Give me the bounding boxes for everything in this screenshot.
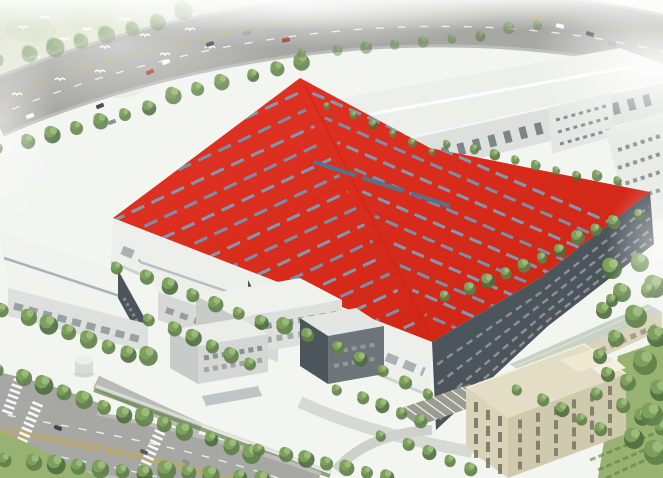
tree-highlight bbox=[326, 103, 329, 106]
tree-highlight bbox=[257, 444, 262, 449]
tree-highlight bbox=[652, 441, 663, 452]
tree-highlight bbox=[426, 389, 431, 394]
tree-highlight bbox=[451, 35, 455, 39]
tree-highlight bbox=[443, 291, 448, 296]
aerial-rendering bbox=[0, 0, 663, 478]
tree-highlight bbox=[76, 460, 83, 467]
tree-highlight bbox=[359, 352, 365, 358]
tree-highlight bbox=[385, 470, 391, 476]
tree-highlight bbox=[411, 138, 415, 142]
tree-highlight bbox=[392, 130, 395, 133]
tree-highlight bbox=[99, 114, 106, 121]
tree-highlight bbox=[479, 31, 484, 36]
tree-highlight bbox=[515, 385, 520, 390]
tree-highlight bbox=[142, 466, 149, 473]
tree-highlight bbox=[407, 438, 412, 443]
tree-highlight bbox=[115, 262, 120, 267]
tree-highlight bbox=[147, 314, 152, 319]
tree-highlight bbox=[22, 370, 29, 377]
tree-highlight bbox=[229, 348, 236, 355]
tree-highlight bbox=[468, 283, 473, 288]
tree-highlight bbox=[107, 340, 113, 346]
tree-highlight bbox=[0, 303, 6, 309]
tree-highlight bbox=[210, 340, 216, 346]
tree-highlight bbox=[534, 160, 538, 164]
tree-highlight bbox=[599, 423, 605, 429]
tree-highlight bbox=[325, 457, 331, 463]
tree-highlight bbox=[446, 140, 449, 143]
tree-highlight bbox=[301, 49, 305, 53]
tree-highlight bbox=[102, 401, 108, 407]
tree-highlight bbox=[580, 414, 585, 419]
tree-highlight bbox=[173, 322, 179, 328]
tree-highlight bbox=[191, 289, 197, 295]
tree-highlight bbox=[182, 423, 190, 431]
tree-highlight bbox=[555, 167, 558, 170]
tree-highlight bbox=[26, 310, 33, 317]
scene-canvas bbox=[0, 0, 663, 478]
tree-highlight bbox=[260, 316, 266, 322]
tree-highlight bbox=[145, 270, 151, 276]
tree-highlight bbox=[598, 350, 604, 356]
tree-highlight bbox=[594, 224, 599, 229]
tree-highlight bbox=[504, 268, 509, 273]
tree-highlight bbox=[400, 408, 405, 413]
tree-highlight bbox=[62, 385, 69, 392]
tree-highlight bbox=[75, 122, 81, 128]
tree-highlight bbox=[493, 149, 498, 154]
tree-highlight bbox=[541, 394, 546, 399]
tree-highlight bbox=[610, 295, 615, 300]
tree-highlight bbox=[238, 470, 244, 476]
tree-highlight bbox=[191, 330, 198, 337]
tree-highlight bbox=[46, 316, 54, 324]
tree-highlight bbox=[67, 325, 74, 332]
tree-highlight bbox=[404, 376, 410, 382]
gatehouse bbox=[74, 356, 94, 378]
tree-highlight bbox=[126, 347, 133, 354]
tree-highlight bbox=[214, 297, 221, 304]
tree-highlight bbox=[32, 455, 39, 462]
tree-highlight bbox=[380, 399, 386, 405]
tree-highlight bbox=[522, 259, 528, 265]
tree-highlight bbox=[419, 415, 425, 421]
tree-highlight bbox=[431, 149, 434, 152]
tree-highlight bbox=[616, 177, 620, 181]
tree-highlight bbox=[337, 342, 342, 347]
tree-highlight bbox=[345, 461, 352, 468]
tree-highlight bbox=[595, 388, 600, 393]
tree-highlight bbox=[448, 455, 453, 460]
tree-highlight bbox=[382, 365, 387, 370]
tree-highlight bbox=[606, 368, 612, 374]
tree-highlight bbox=[379, 431, 384, 436]
tree-highlight bbox=[361, 392, 366, 397]
tree-highlight bbox=[540, 253, 545, 258]
tree-highlight bbox=[654, 327, 663, 336]
tree-highlight bbox=[3, 453, 9, 459]
tree-highlight bbox=[209, 433, 215, 439]
tree-highlight bbox=[282, 318, 289, 325]
tree-highlight bbox=[53, 456, 61, 464]
tree-highlight bbox=[307, 331, 312, 336]
tree-highlight bbox=[98, 461, 106, 469]
tree-highlight bbox=[575, 171, 579, 175]
tree-highlight bbox=[248, 358, 253, 363]
tree-highlight bbox=[649, 404, 659, 414]
tree-highlight bbox=[86, 331, 94, 339]
tree-highlight bbox=[621, 399, 627, 405]
tree-highlight bbox=[284, 448, 290, 454]
tree-highlight bbox=[335, 385, 340, 390]
tree-highlight bbox=[41, 376, 49, 384]
tree-highlight bbox=[187, 465, 194, 472]
tree-highlight bbox=[121, 465, 127, 471]
tree-highlight bbox=[514, 156, 518, 160]
tree-highlight bbox=[614, 331, 621, 338]
tree-highlight bbox=[275, 62, 281, 68]
tree-highlight bbox=[558, 245, 563, 250]
tree-highlight bbox=[164, 461, 172, 469]
gatehouse-roof bbox=[75, 356, 94, 365]
tree-highlight bbox=[641, 351, 652, 362]
tree-highlight bbox=[372, 120, 376, 124]
tree-highlight bbox=[167, 278, 174, 285]
tree-highlight bbox=[146, 347, 154, 355]
tree-highlight bbox=[304, 451, 311, 458]
tree-highlight bbox=[576, 230, 582, 236]
tree-highlight bbox=[82, 392, 90, 400]
tree-highlight bbox=[352, 111, 356, 115]
tree-highlight bbox=[427, 446, 433, 452]
tree-highlight bbox=[560, 403, 566, 409]
tree-highlight bbox=[486, 274, 492, 280]
tree-highlight bbox=[162, 417, 169, 424]
tree-highlight bbox=[596, 170, 601, 175]
tree-highlight bbox=[122, 407, 129, 414]
tree-highlight bbox=[208, 466, 216, 474]
tree-highlight bbox=[473, 145, 477, 149]
tree-highlight bbox=[631, 429, 640, 438]
tree-highlight bbox=[237, 307, 242, 312]
tree-highlight bbox=[229, 439, 236, 446]
tree-highlight bbox=[141, 408, 149, 416]
tree-highlight bbox=[626, 375, 633, 382]
tree-highlight bbox=[469, 463, 475, 469]
tree-highlight bbox=[365, 467, 370, 472]
